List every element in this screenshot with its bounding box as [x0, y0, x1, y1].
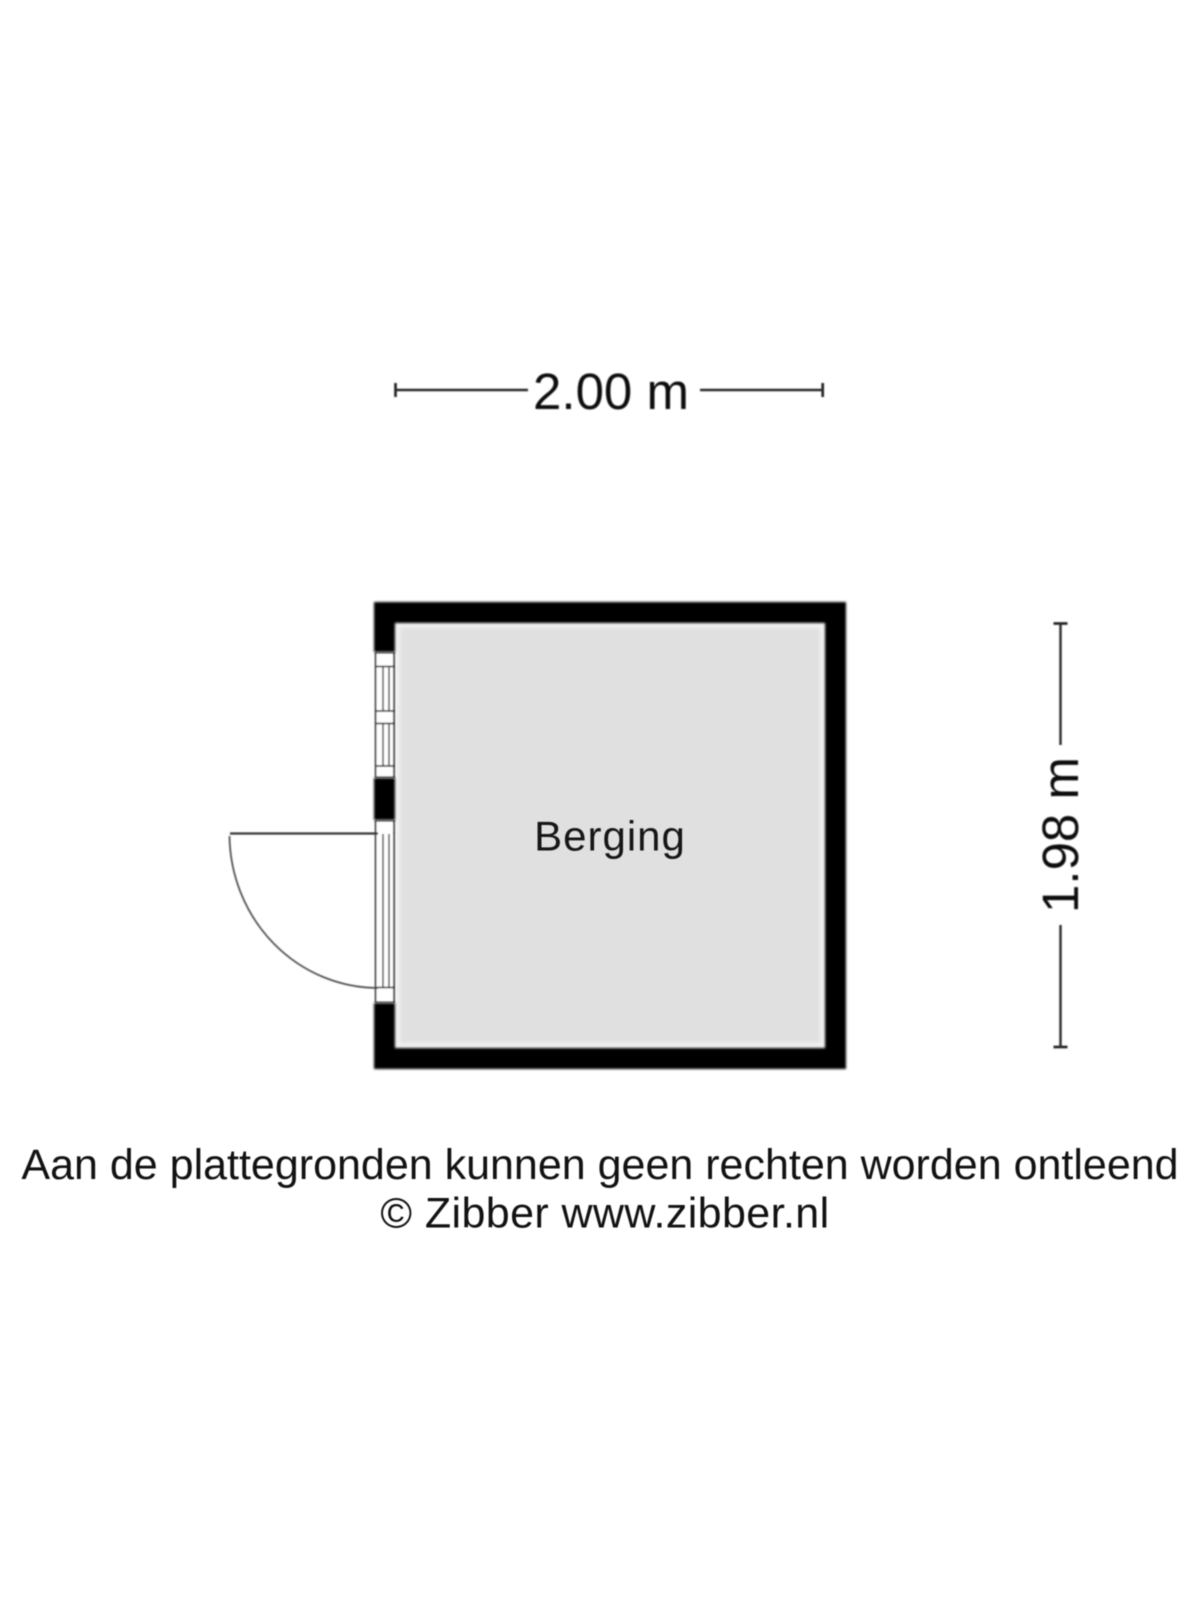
- svg-text:Aan de plattegronden kunnen ge: Aan de plattegronden kunnen geen rechten…: [21, 1141, 1178, 1189]
- svg-text:1.98 m: 1.98 m: [1032, 757, 1089, 913]
- svg-text:© Zibber www.zibber.nl: © Zibber www.zibber.nl: [380, 1190, 829, 1238]
- svg-text:2.00 m: 2.00 m: [533, 363, 689, 420]
- svg-text:Berging: Berging: [534, 813, 686, 860]
